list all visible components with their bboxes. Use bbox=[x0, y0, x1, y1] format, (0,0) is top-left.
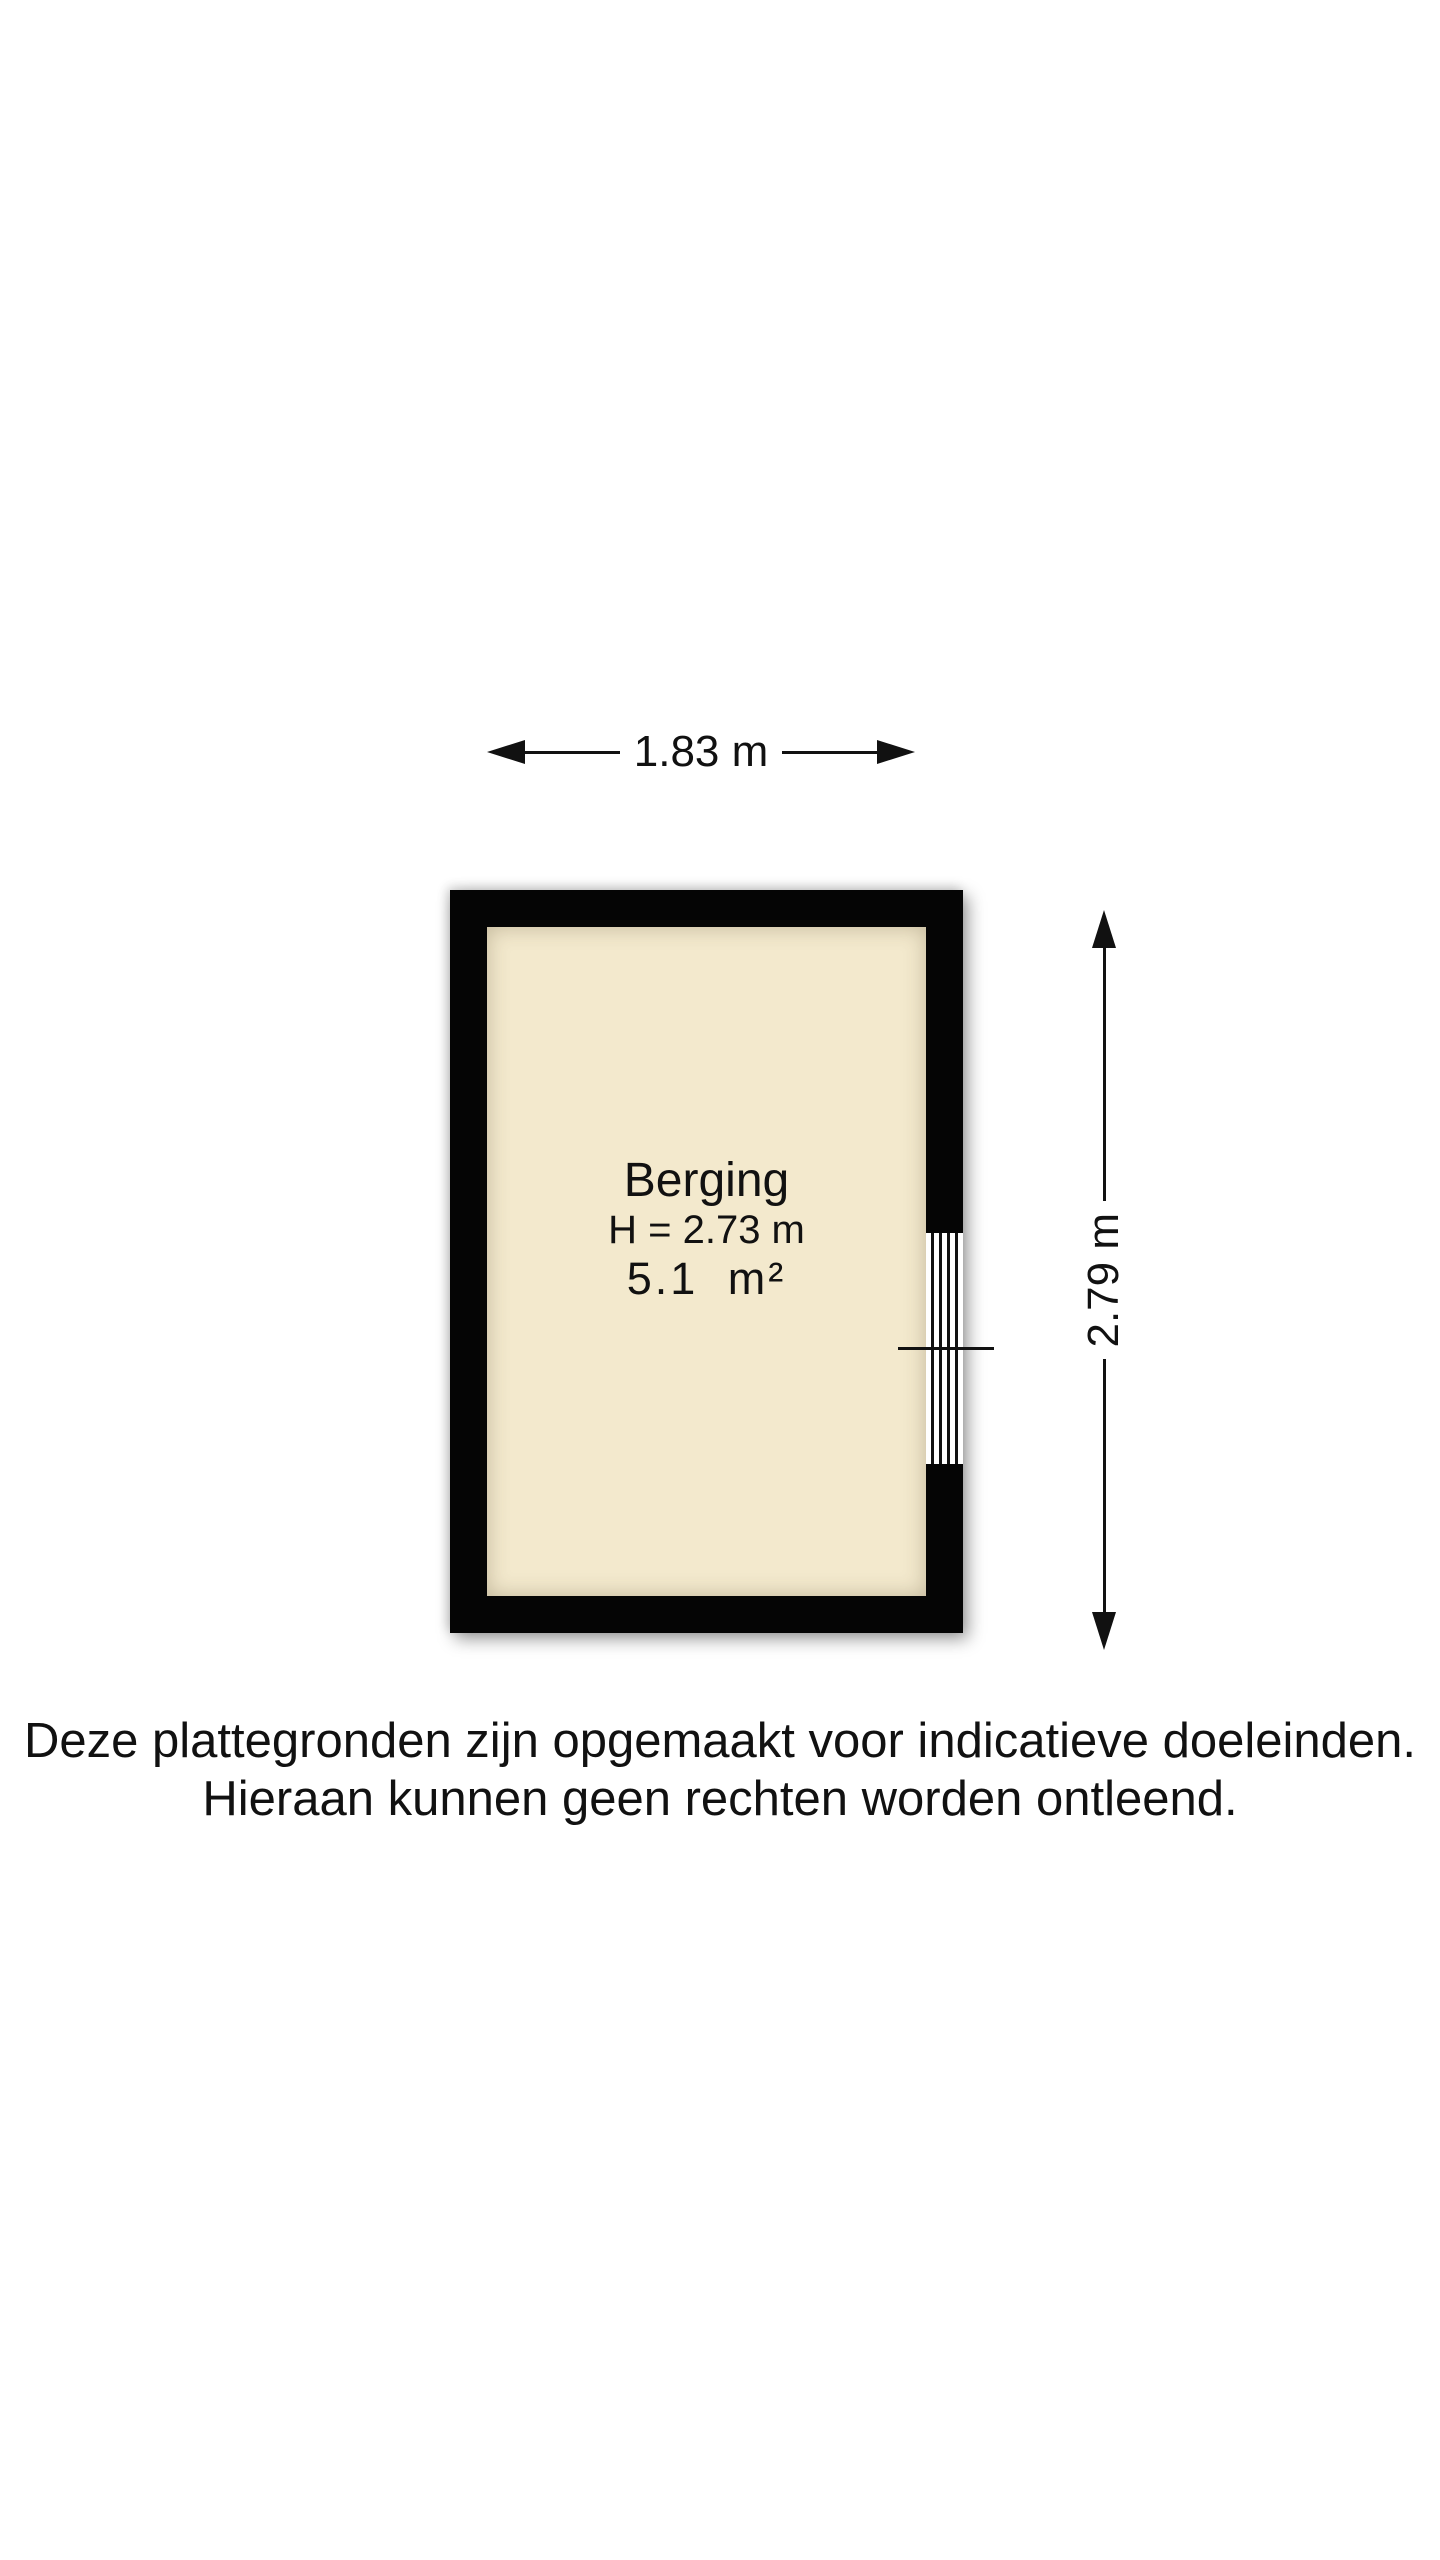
ceiling-height-label: H = 2.73 m bbox=[487, 1207, 926, 1254]
arrow-up-icon bbox=[1092, 910, 1116, 948]
room-label: Berging H = 2.73 m 5.1 m² bbox=[487, 1155, 926, 1303]
arrow-down-icon bbox=[1092, 1612, 1116, 1650]
window-sill-mark bbox=[898, 1347, 994, 1350]
dimension-line bbox=[1103, 1359, 1106, 1612]
disclaimer: Deze plattegronden zijn opgemaakt voor i… bbox=[0, 1712, 1440, 1828]
room-floor: Berging H = 2.73 m 5.1 m² bbox=[487, 927, 926, 1596]
room-berging-outline: Berging H = 2.73 m 5.1 m² bbox=[450, 890, 963, 1633]
dimension-line bbox=[525, 751, 620, 754]
width-dimension-label: 1.83 m bbox=[634, 730, 769, 774]
room-area-label: 5.1 m² bbox=[487, 1254, 926, 1303]
disclaimer-line-1: Deze plattegronden zijn opgemaakt voor i… bbox=[0, 1712, 1440, 1770]
arrow-right-icon bbox=[877, 740, 915, 764]
dimension-line bbox=[1103, 948, 1106, 1201]
room-name-label: Berging bbox=[487, 1155, 926, 1207]
height-dimension-label: 2.79 m bbox=[1079, 1213, 1129, 1348]
width-dimension: 1.83 m bbox=[487, 730, 915, 774]
arrow-left-icon bbox=[487, 740, 525, 764]
height-dimension: 2.79 m bbox=[1082, 910, 1126, 1650]
floorplan-canvas: 1.83 m Berging H = 2.73 m 5.1 m² 2.79 m bbox=[0, 0, 1440, 2560]
dimension-line bbox=[782, 751, 877, 754]
disclaimer-line-2: Hieraan kunnen geen rechten worden ontle… bbox=[0, 1770, 1440, 1828]
